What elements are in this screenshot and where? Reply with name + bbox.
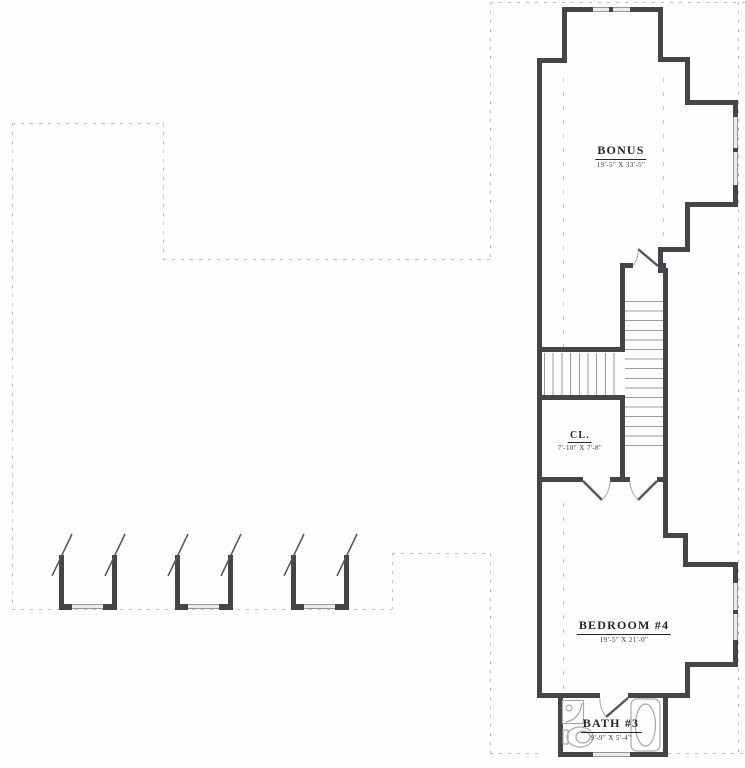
room-title: CL. xyxy=(568,430,592,443)
dormer-roof-lines xyxy=(52,534,357,576)
room-dimensions: 19'-5" X 33'-5" xyxy=(595,161,646,169)
room-title: BONUS xyxy=(595,143,646,160)
room-dimensions: 7'-10" X 7'-8" xyxy=(558,444,603,452)
room-label-closet: CL. 7'-10" X 7'-8" xyxy=(558,425,603,452)
door-bonus xyxy=(633,249,658,266)
room-dimensions: 9'-9" X 5'-4" xyxy=(581,734,642,742)
plan-linework xyxy=(0,0,745,768)
room-label-bedroom4: BEDROOM #4 19'-5" X 21'-0" xyxy=(577,616,671,644)
room-title: BEDROOM #4 xyxy=(577,618,671,635)
room-title: BATH #3 xyxy=(581,716,642,733)
room-label-bonus: BONUS 19'-5" X 33'-5" xyxy=(595,141,646,169)
room-label-bath3: BATH #3 9'-9" X 5'-4" xyxy=(581,714,642,742)
floor-plan: BONUS 19'-5" X 33'-5" CL. 7'-10" X 7'-8"… xyxy=(0,0,745,768)
room-dimensions: 19'-5" X 21'-0" xyxy=(577,636,671,644)
door-bedroom xyxy=(630,481,657,500)
door-closet xyxy=(583,481,610,500)
